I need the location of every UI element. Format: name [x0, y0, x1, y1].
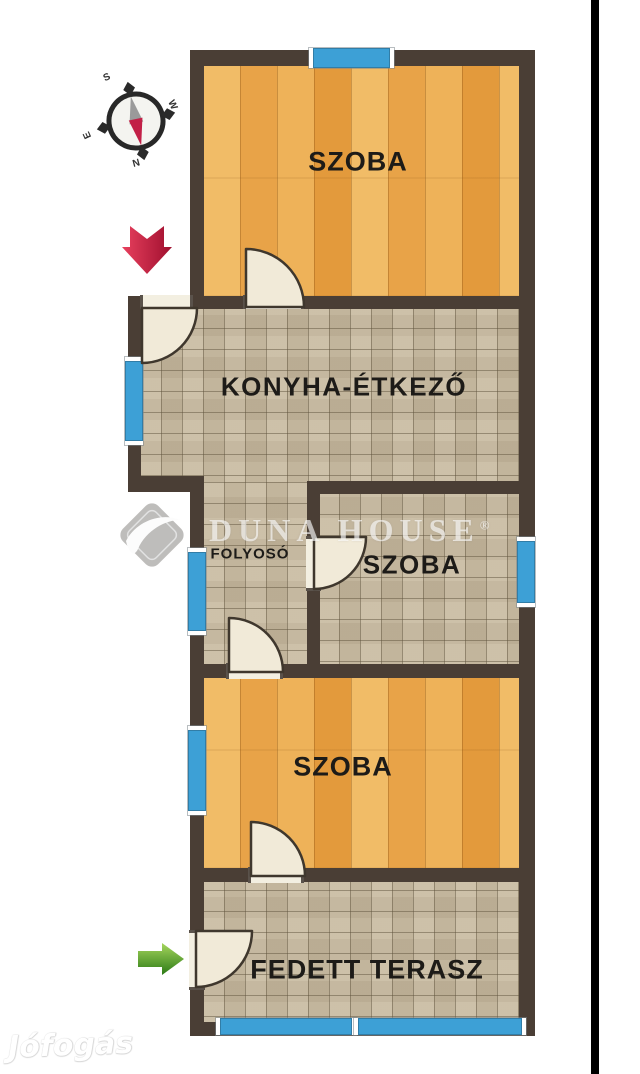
- door-opening-szoba-top: [243, 295, 304, 309]
- door-opening-terrace-from-szoba: [248, 867, 304, 883]
- window-terrace-glazing-right: [354, 1018, 526, 1035]
- window-szoba-middle-right: [517, 537, 535, 607]
- floor-terrace: [203, 869, 520, 1023]
- compass-label-e: E: [81, 129, 94, 140]
- registered-mark: ®: [480, 517, 490, 532]
- green-arrow-right-icon: [138, 943, 184, 975]
- wall-szoba-middle-top: [307, 481, 535, 494]
- room-label-fedett-terasz: FEDETT TERASZ: [250, 955, 484, 986]
- room-label-szoba-middle: SZOBA: [363, 550, 462, 581]
- window-szoba-bottom-left: [188, 726, 206, 815]
- wall-left-upper: [190, 50, 204, 308]
- floor-szoba-top: [203, 64, 520, 297]
- window-szoba-top: [309, 48, 394, 68]
- door-opening-szoba-bottom: [226, 663, 283, 679]
- door-opening-main-entrance: [140, 295, 193, 309]
- compass-needle-gray: [124, 95, 143, 124]
- floor-hallway: [203, 482, 321, 665]
- compass-label-n: N: [131, 157, 141, 169]
- portal-watermark: Jófogás: [7, 1026, 133, 1065]
- room-label-konyha-etkezo: KONYHA-ÉTKEZŐ: [221, 372, 467, 403]
- window-terrace-glazing-left: [216, 1018, 356, 1035]
- window-hallway-left: [188, 548, 206, 635]
- compass-label-w: W: [165, 98, 179, 112]
- door-opening-terrace-entrance: [189, 930, 205, 990]
- red-arrow-down-icon: [122, 226, 172, 274]
- compass-label-s: S: [102, 71, 113, 84]
- agency-text-watermark: DUNA HOUSE®: [209, 512, 489, 549]
- compass-needle-red: [129, 118, 148, 147]
- window-kitchen-left: [125, 357, 143, 445]
- photo-edge-line: [591, 0, 599, 1074]
- room-label-szoba-bottom: SZOBA: [293, 752, 393, 783]
- wall-terrace-top: [190, 868, 535, 882]
- agency-logo-watermark: [117, 500, 188, 571]
- floor-plan: S W N E SZOBA KONYHA-ÉTKEZŐ FOLYOSÓ SZOB…: [0, 0, 640, 1074]
- room-label-szoba-top: SZOBA: [308, 147, 408, 178]
- compass-rose-icon: S W N E: [81, 71, 183, 170]
